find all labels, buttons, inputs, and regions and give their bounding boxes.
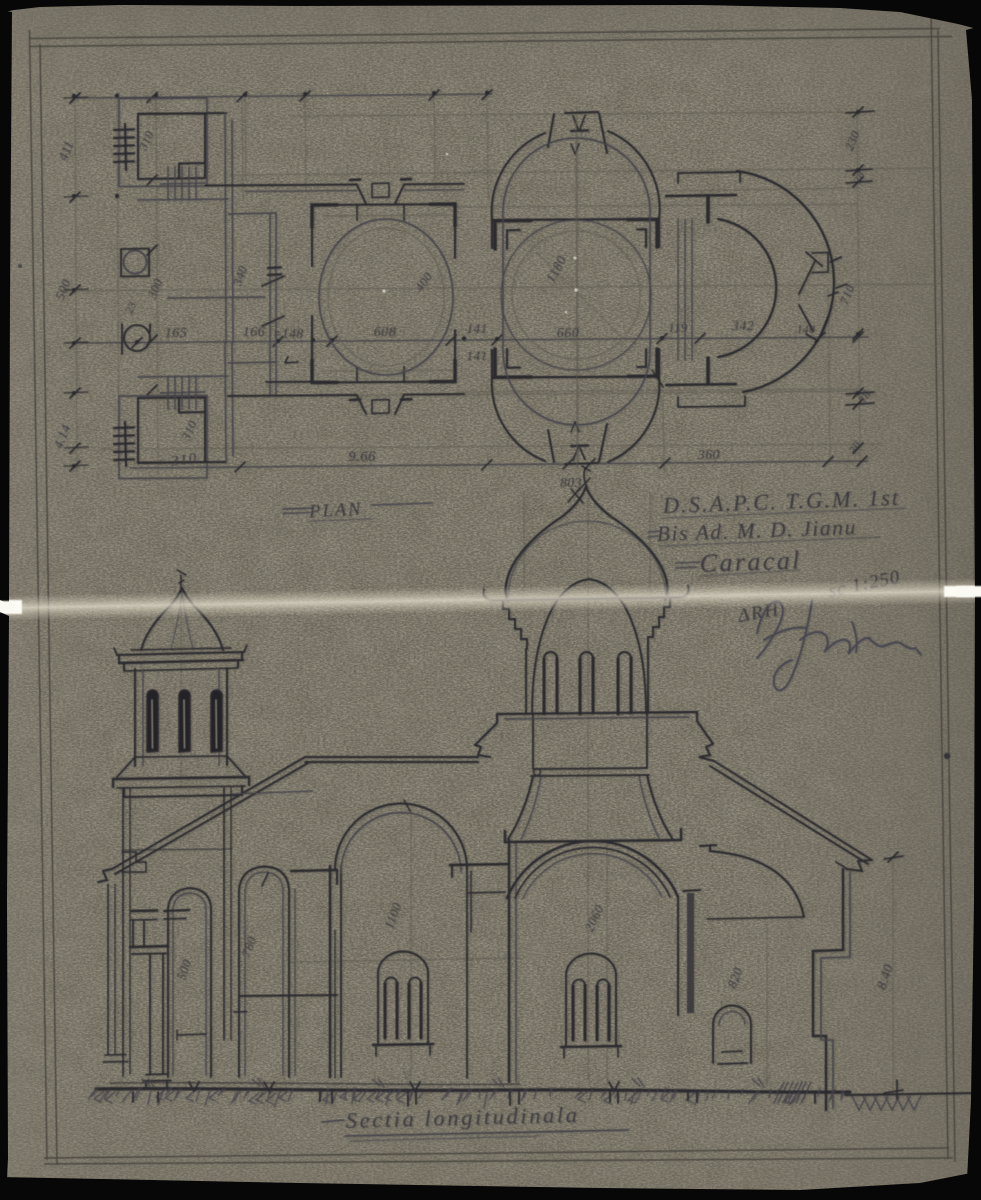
- svg-text:141: 141: [467, 348, 488, 363]
- svg-text:165: 165: [165, 326, 188, 341]
- svg-text:360: 360: [697, 447, 720, 462]
- svg-text:=148: =148: [272, 326, 303, 341]
- svg-text:803: 803: [560, 475, 582, 490]
- svg-text:342: 342: [731, 319, 755, 334]
- svg-text:140: 140: [797, 324, 816, 336]
- svg-text:PLAN: PLAN: [308, 500, 363, 523]
- svg-text:119: 119: [668, 321, 688, 335]
- svg-text:166: 166: [243, 325, 266, 340]
- svg-text:141: 141: [467, 321, 488, 336]
- svg-text:608: 608: [374, 325, 397, 340]
- svg-text:660: 660: [557, 326, 580, 341]
- svg-text:9.66: 9.66: [348, 449, 376, 465]
